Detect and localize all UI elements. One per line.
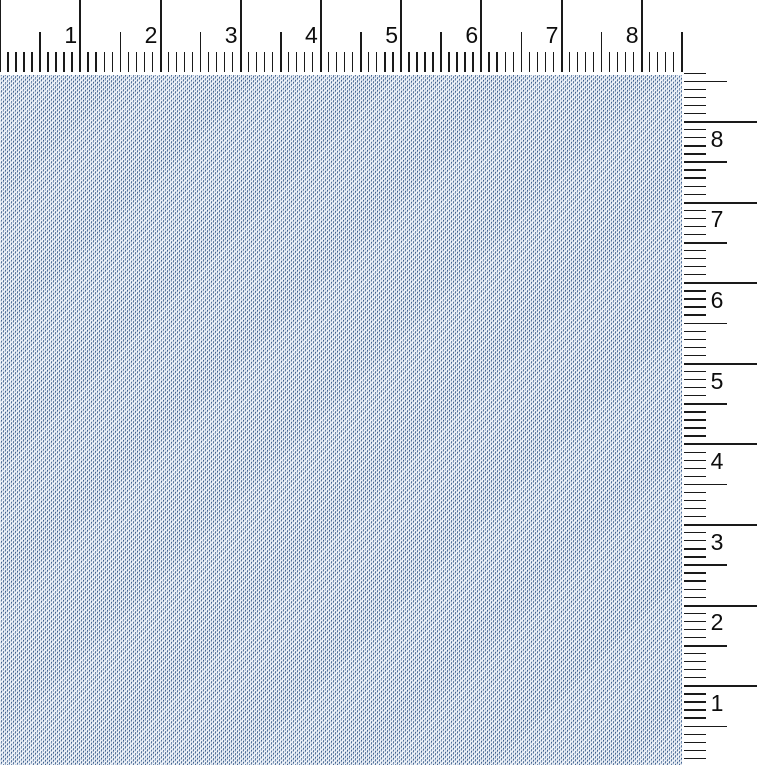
v-ruler-number-1: 1 xyxy=(702,692,732,715)
h-minor-tick xyxy=(7,52,8,72)
h-minor-tick xyxy=(376,52,377,72)
v-minor-tick xyxy=(684,395,706,396)
h-minor-tick xyxy=(144,52,145,72)
v-minor-tick xyxy=(684,274,706,275)
vertical-ruler: 87654321 xyxy=(683,0,757,765)
v-minor-tick xyxy=(684,734,706,735)
v-minor-tick xyxy=(684,97,706,98)
h-minor-tick xyxy=(633,52,634,72)
h-minor-tick xyxy=(569,52,570,72)
v-minor-tick xyxy=(684,331,706,332)
h-inch-tick xyxy=(240,0,242,72)
v-inch-tick xyxy=(684,685,757,687)
h-minor-tick xyxy=(224,52,225,72)
h-minor-tick xyxy=(336,52,337,72)
v-minor-tick xyxy=(684,177,706,178)
h-minor-tick xyxy=(577,52,578,72)
h-minor-tick xyxy=(47,52,48,72)
v-ruler-number-6: 6 xyxy=(702,289,732,312)
horizontal-ruler: 12345678 xyxy=(0,0,683,75)
v-minor-tick xyxy=(684,637,706,638)
v-minor-tick xyxy=(684,427,706,428)
h-minor-tick xyxy=(456,52,457,72)
h-minor-tick xyxy=(288,52,289,72)
v-half-tick xyxy=(684,726,727,728)
v-minor-tick xyxy=(684,742,706,743)
h-ruler-number-7: 7 xyxy=(514,24,558,47)
v-minor-tick xyxy=(684,153,706,154)
h-inch-tick xyxy=(0,0,1,72)
h-minor-tick xyxy=(128,52,129,72)
h-minor-tick xyxy=(328,52,329,72)
h-minor-tick xyxy=(272,52,273,72)
h-minor-tick xyxy=(472,52,473,72)
h-minor-tick xyxy=(304,52,305,72)
h-minor-tick xyxy=(368,52,369,72)
v-inch-tick xyxy=(684,121,757,123)
v-minor-tick xyxy=(684,669,706,670)
h-minor-tick xyxy=(665,52,666,72)
v-minor-tick xyxy=(684,266,706,267)
h-ruler-number-2: 2 xyxy=(113,24,157,47)
h-minor-tick xyxy=(168,52,169,72)
v-minor-tick xyxy=(684,476,706,477)
v-minor-tick xyxy=(684,500,706,501)
v-minor-tick xyxy=(684,105,706,106)
h-minor-tick xyxy=(408,52,409,72)
v-inch-tick xyxy=(684,524,757,526)
v-minor-tick xyxy=(684,258,706,259)
h-minor-tick xyxy=(537,52,538,72)
v-minor-tick xyxy=(684,339,706,340)
h-ruler-number-8: 8 xyxy=(595,24,639,47)
h-minor-tick xyxy=(617,52,618,72)
h-minor-tick xyxy=(432,52,433,72)
h-inch-tick xyxy=(480,0,482,72)
v-minor-tick xyxy=(684,758,706,759)
h-ruler-number-6: 6 xyxy=(434,24,478,47)
h-ruler-number-4: 4 xyxy=(274,24,318,47)
v-half-tick xyxy=(684,161,727,163)
h-minor-tick xyxy=(256,52,257,72)
v-ruler-number-3: 3 xyxy=(702,531,732,554)
h-minor-tick xyxy=(448,52,449,72)
h-minor-tick xyxy=(545,52,546,72)
h-minor-tick xyxy=(184,52,185,72)
h-inch-tick xyxy=(641,0,643,72)
h-minor-tick xyxy=(296,52,297,72)
v-minor-tick xyxy=(684,169,706,170)
v-minor-tick xyxy=(684,435,706,436)
h-ruler-number-1: 1 xyxy=(33,24,77,47)
v-ruler-number-2: 2 xyxy=(702,611,732,634)
h-ruler-number-3: 3 xyxy=(194,24,238,47)
v-minor-tick xyxy=(684,572,706,573)
h-minor-tick xyxy=(505,52,506,72)
h-minor-tick xyxy=(352,52,353,72)
v-minor-tick xyxy=(684,411,706,412)
v-inch-tick xyxy=(684,202,757,204)
v-half-tick xyxy=(684,81,727,83)
h-minor-tick xyxy=(424,52,425,72)
h-minor-tick xyxy=(529,52,530,72)
v-minor-tick xyxy=(684,677,706,678)
v-minor-tick xyxy=(684,653,706,654)
h-minor-tick xyxy=(208,52,209,72)
h-minor-tick xyxy=(488,52,489,72)
h-minor-tick xyxy=(55,52,56,72)
v-minor-tick xyxy=(684,750,706,751)
h-minor-tick xyxy=(344,52,345,72)
v-ruler-number-7: 7 xyxy=(702,208,732,231)
v-minor-tick xyxy=(684,234,706,235)
h-minor-tick xyxy=(416,52,417,72)
h-minor-tick xyxy=(216,52,217,72)
h-minor-tick xyxy=(649,52,650,72)
v-half-tick xyxy=(684,564,727,566)
v-minor-tick xyxy=(684,347,706,348)
h-minor-tick xyxy=(15,52,16,72)
h-minor-tick xyxy=(152,52,153,72)
h-minor-tick xyxy=(112,52,113,72)
fabric-measurement-view: 12345678 87654321 xyxy=(0,0,757,765)
h-minor-tick xyxy=(464,52,465,72)
h-minor-tick xyxy=(192,52,193,72)
h-minor-tick xyxy=(593,52,594,72)
h-minor-tick xyxy=(71,52,72,72)
v-half-tick xyxy=(684,242,727,244)
v-minor-tick xyxy=(684,250,706,251)
v-minor-tick xyxy=(684,556,706,557)
v-half-tick xyxy=(684,645,727,647)
v-half-tick xyxy=(684,403,727,405)
v-minor-tick xyxy=(684,508,706,509)
v-minor-tick xyxy=(684,314,706,315)
v-minor-tick xyxy=(684,516,706,517)
v-minor-tick xyxy=(684,113,706,114)
h-minor-tick xyxy=(232,52,233,72)
v-minor-tick xyxy=(684,597,706,598)
h-minor-tick xyxy=(312,52,313,72)
h-inch-tick xyxy=(561,0,563,72)
v-half-tick xyxy=(684,484,727,486)
v-minor-tick xyxy=(684,89,706,90)
v-half-tick xyxy=(684,323,727,325)
h-inch-tick xyxy=(79,0,81,72)
h-minor-tick xyxy=(248,52,249,72)
h-minor-tick xyxy=(104,52,105,72)
h-minor-tick xyxy=(553,52,554,72)
h-minor-tick xyxy=(136,52,137,72)
h-minor-tick xyxy=(87,52,88,72)
v-minor-tick xyxy=(684,589,706,590)
h-minor-tick xyxy=(31,52,32,72)
v-ruler-number-4: 4 xyxy=(702,450,732,473)
h-inch-tick xyxy=(320,0,322,72)
h-minor-tick xyxy=(657,52,658,72)
v-minor-tick xyxy=(684,194,706,195)
v-ruler-number-5: 5 xyxy=(702,370,732,393)
v-minor-tick xyxy=(684,492,706,493)
v-inch-tick xyxy=(684,363,757,365)
h-minor-tick xyxy=(585,52,586,72)
v-minor-tick xyxy=(684,717,706,718)
v-minor-tick xyxy=(684,419,706,420)
h-minor-tick xyxy=(496,52,497,72)
h-minor-tick xyxy=(384,52,385,72)
h-minor-tick xyxy=(95,52,96,72)
v-inch-tick xyxy=(684,605,757,607)
v-inch-tick xyxy=(684,443,757,445)
fabric-swatch xyxy=(0,75,682,765)
h-minor-tick xyxy=(392,52,393,72)
v-minor-tick xyxy=(684,355,706,356)
v-minor-tick xyxy=(684,580,706,581)
h-minor-tick xyxy=(673,52,674,72)
h-minor-tick xyxy=(264,52,265,72)
h-minor-tick xyxy=(23,52,24,72)
v-minor-tick xyxy=(684,73,706,74)
h-inch-tick xyxy=(160,0,162,72)
h-minor-tick xyxy=(609,52,610,72)
h-minor-tick xyxy=(63,52,64,72)
v-inch-tick xyxy=(684,282,757,284)
v-minor-tick xyxy=(684,186,706,187)
h-ruler-number-5: 5 xyxy=(354,24,398,47)
h-minor-tick xyxy=(513,52,514,72)
h-inch-tick xyxy=(400,0,402,72)
v-ruler-number-8: 8 xyxy=(702,128,732,151)
v-minor-tick xyxy=(684,661,706,662)
h-minor-tick xyxy=(176,52,177,72)
h-minor-tick xyxy=(625,52,626,72)
